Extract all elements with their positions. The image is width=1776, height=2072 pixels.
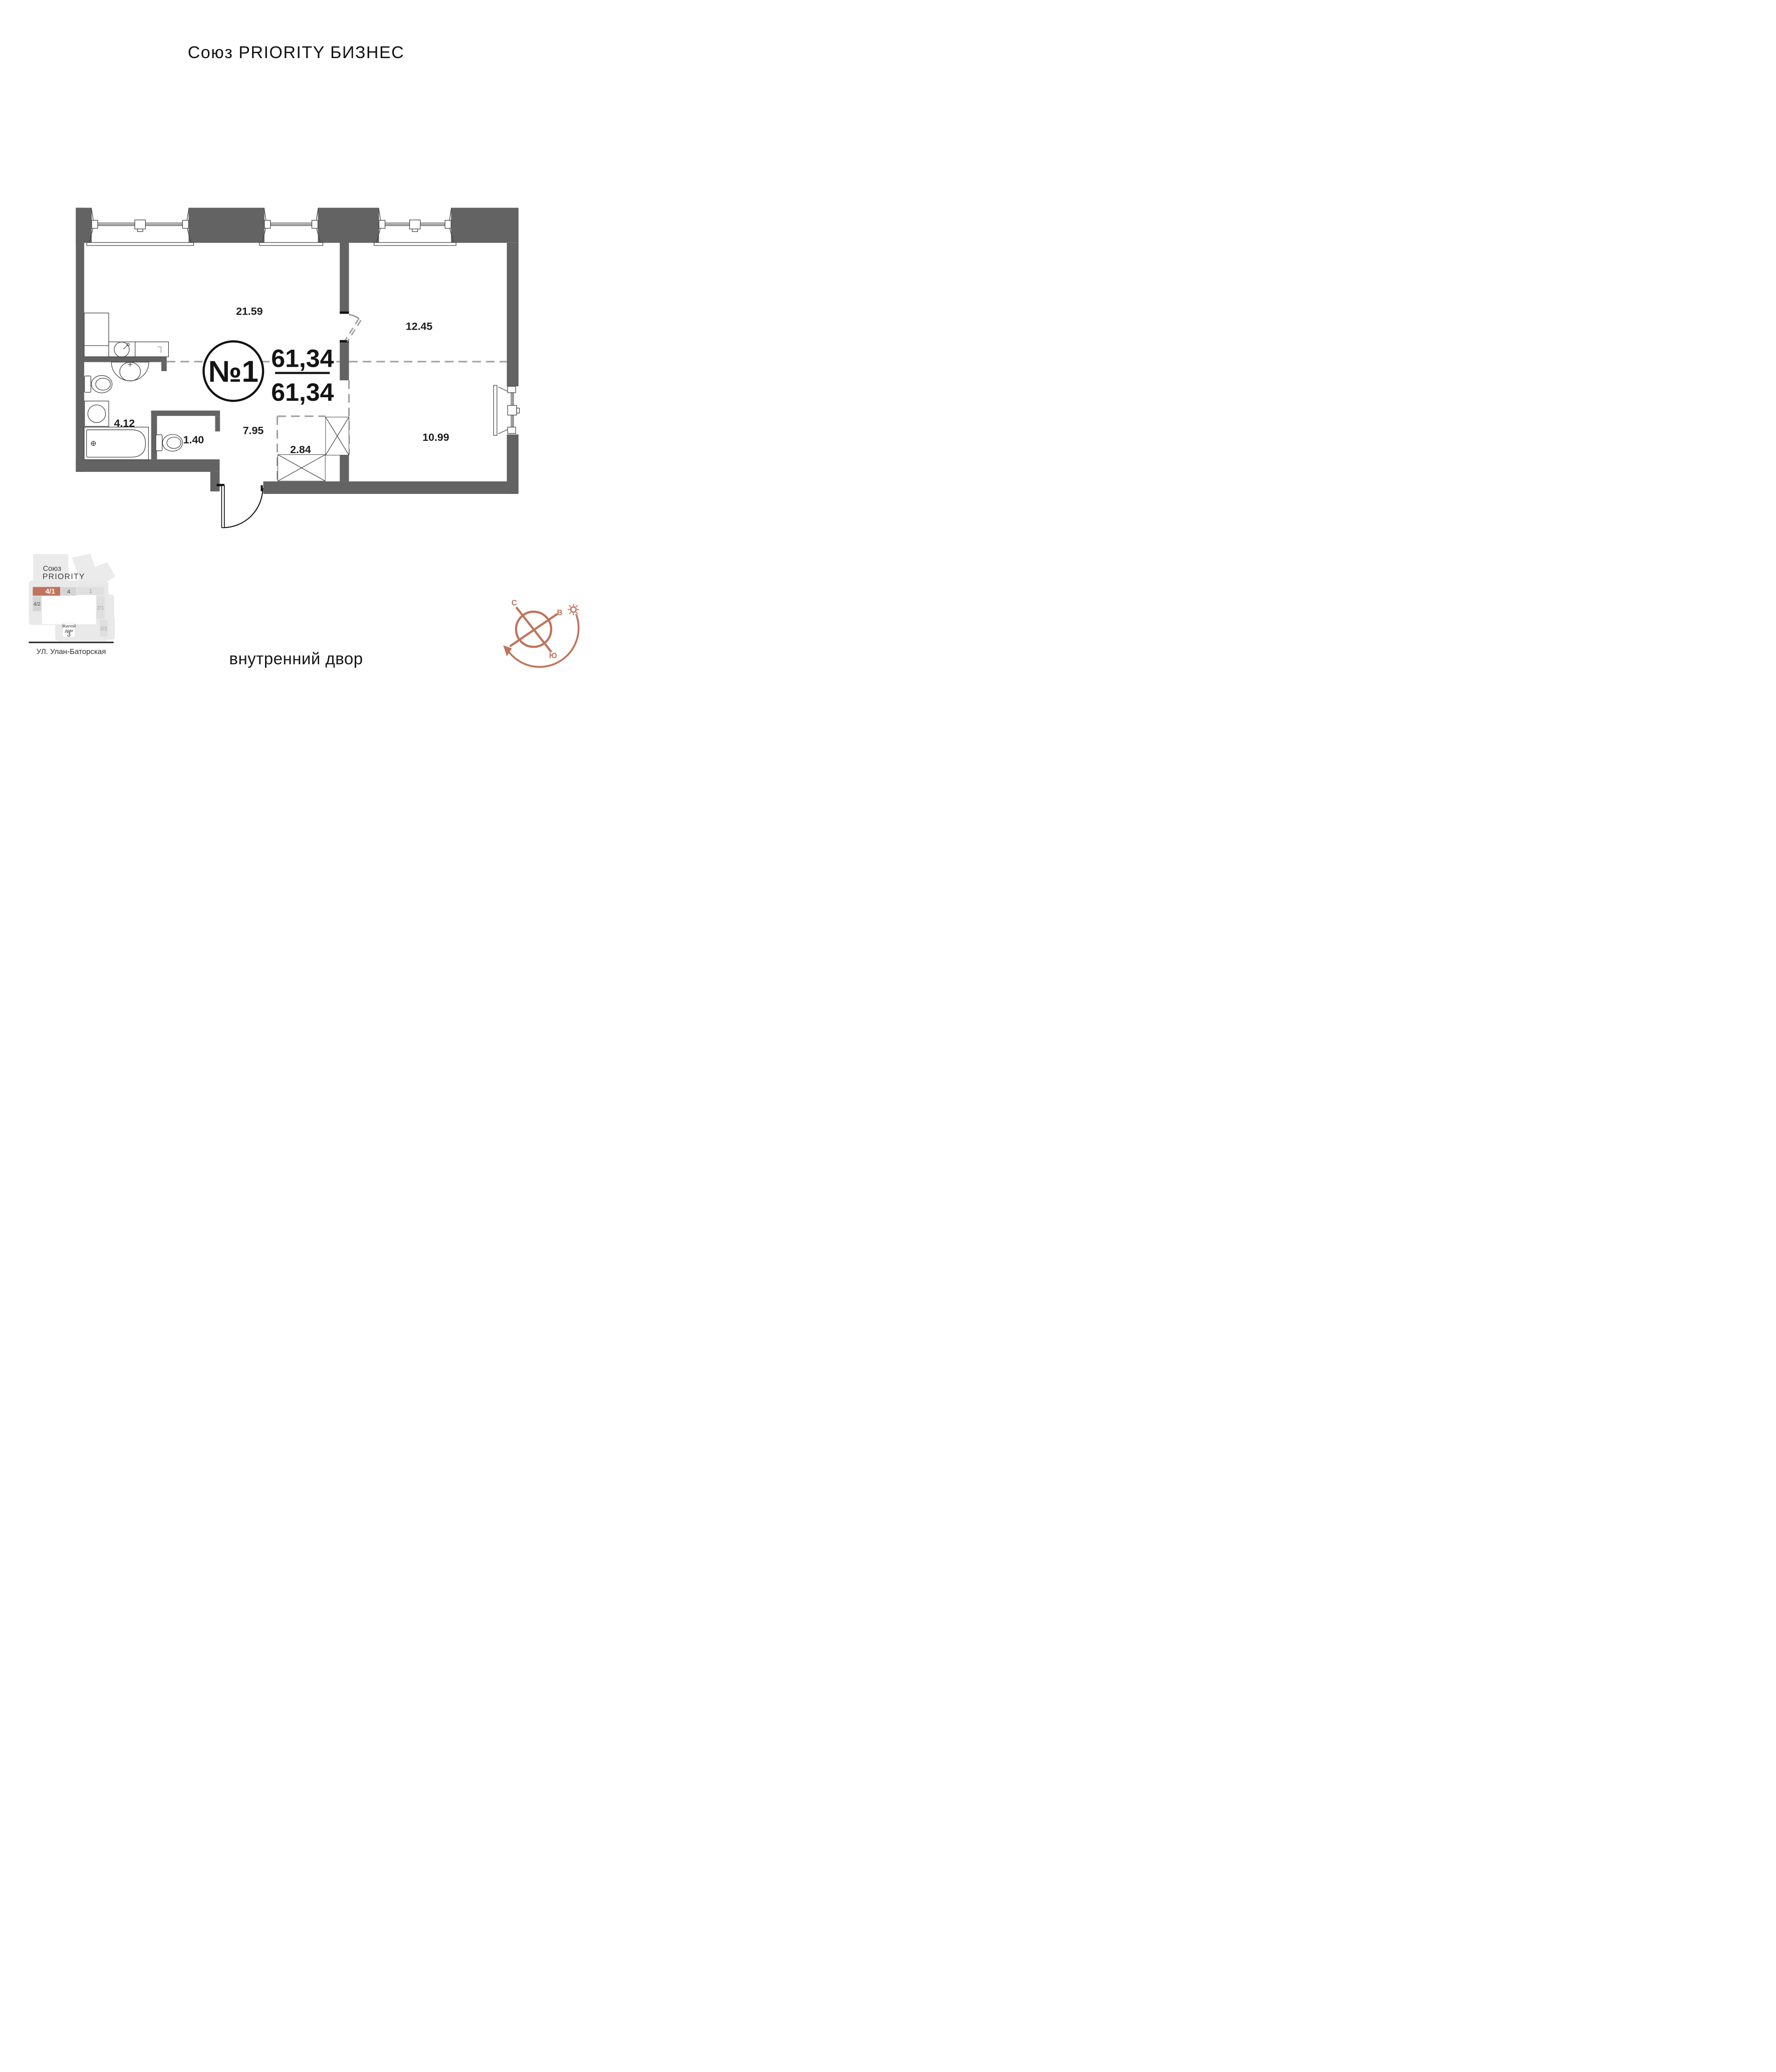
compass-east: В [557,609,563,617]
total-area: 61,34 [271,344,334,372]
site-map-project-line2: PRIORITY [43,573,85,581]
courtyard-label: внутренний двор [0,649,592,668]
block-4-2-label: 4/2 [34,602,41,607]
room-area-bedroom: 12.45 [406,320,433,332]
site-map: Союз PRIORITY 4/1 4 1 4/2 2/1 2/2 Жилой … [25,554,131,665]
room-area-living-kitchen: 21.59 [236,305,263,317]
window-north-3 [374,208,456,245]
wardrobe-cabinets [278,417,349,481]
wc-fixtures [156,434,182,451]
block-2-1-label: 2/1 [97,606,104,611]
bedroom-door-swing [340,312,361,343]
floor-plan: №1 61,34 61,34 21.59 12.45 7.95 4.12 1.4… [72,200,536,579]
bathroom-fixtures [84,362,149,459]
block-4-label: 4 [67,589,70,595]
street-line [29,642,113,643]
kitchen-counter [84,313,168,357]
window-east [493,385,519,435]
block-4-1-label: 4/1 [45,587,55,595]
block-1-label: 1 [89,589,92,595]
living-area: 61,34 [271,378,334,406]
unit-number: №1 [208,355,259,388]
entrance-door [216,484,263,528]
unit-number-badge: №1 [203,341,263,401]
toilet-icon [85,376,91,392]
room-area-bathroom: 4.12 [114,417,135,429]
site-map-project-line1: Союз [43,565,62,573]
window-north-2 [260,208,323,245]
room-area-bedroom-second: 10.99 [422,431,449,443]
sun-icon [568,604,579,615]
compass: С В З Ю [497,594,591,688]
window-north-1 [87,208,193,245]
room-area-wardrobe: 2.84 [290,444,311,456]
room-area-hall: 7.95 [243,425,264,437]
wc-toilet-icon [156,435,162,451]
page: { "title": "Союз PRIORITY БИЗНЕС", "floo… [0,0,592,691]
block-2-2-label: 2/2 [100,626,107,632]
room-area-wc: 1.40 [183,434,204,446]
page-title: Союз PRIORITY БИЗНЕС [0,43,592,63]
house-3-number: 3 [67,631,71,638]
compass-north: С [512,599,517,608]
